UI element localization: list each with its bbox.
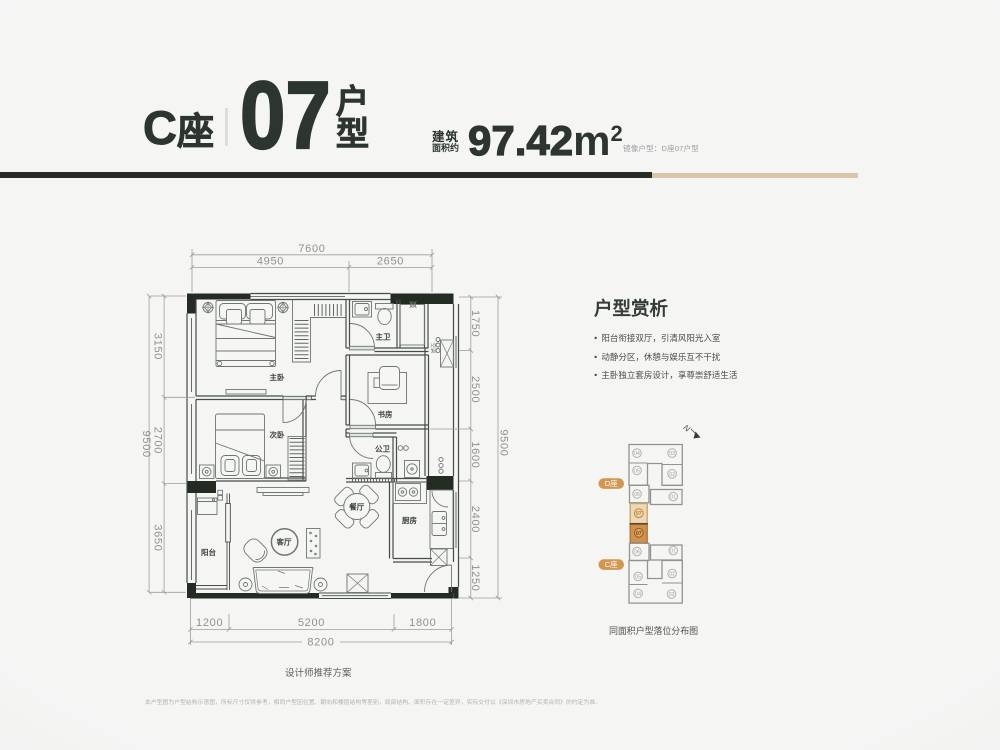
- svg-text:05: 05: [634, 468, 640, 474]
- svg-text:5200: 5200: [298, 617, 325, 629]
- svg-text:03: 03: [669, 592, 675, 598]
- svg-text:02: 02: [669, 472, 675, 478]
- svg-text:客厅: 客厅: [276, 537, 292, 547]
- svg-text:主卧: 主卧: [270, 372, 285, 382]
- svg-text:厨房: 厨房: [402, 515, 417, 525]
- svg-text:01: 01: [670, 495, 676, 501]
- svg-text:9500: 9500: [140, 431, 152, 458]
- svg-text:03: 03: [669, 451, 675, 457]
- svg-text:公卫: 公卫: [375, 445, 390, 454]
- svg-text:次卧: 次卧: [270, 430, 285, 440]
- svg-text:书房: 书房: [378, 409, 393, 419]
- svg-text:06: 06: [634, 550, 640, 556]
- svg-text:04: 04: [634, 451, 640, 457]
- svg-text:7600: 7600: [298, 243, 325, 255]
- svg-text:餐厅: 餐厅: [348, 502, 364, 512]
- svg-text:D座: D座: [605, 478, 618, 488]
- svg-text:2650: 2650: [377, 256, 404, 268]
- svg-text:N: N: [682, 423, 692, 434]
- svg-text:04: 04: [635, 591, 641, 597]
- svg-text:07: 07: [636, 511, 642, 517]
- svg-text:1200: 1200: [196, 617, 223, 629]
- svg-text:2700: 2700: [152, 427, 164, 454]
- svg-text:1600: 1600: [469, 441, 481, 468]
- svg-text:05: 05: [635, 574, 641, 580]
- svg-text:07: 07: [636, 531, 642, 537]
- svg-text:02: 02: [669, 572, 675, 578]
- svg-text:8200: 8200: [307, 637, 334, 649]
- svg-text:阳台: 阳台: [201, 547, 216, 557]
- svg-text:3650: 3650: [152, 524, 164, 551]
- svg-text:06: 06: [634, 492, 640, 498]
- svg-text:C座: C座: [605, 559, 618, 569]
- svg-text:1800: 1800: [409, 617, 436, 629]
- svg-text:2400: 2400: [469, 506, 481, 533]
- svg-text:1250: 1250: [469, 564, 481, 591]
- svg-text:主卫: 主卫: [376, 332, 391, 342]
- svg-text:4950: 4950: [257, 256, 284, 268]
- svg-text:01: 01: [670, 549, 676, 555]
- svg-text:9500: 9500: [498, 429, 510, 456]
- svg-text:3150: 3150: [152, 333, 164, 360]
- svg-text:空调: 空调: [430, 343, 437, 353]
- svg-text:1750: 1750: [469, 310, 481, 337]
- svg-text:2500: 2500: [469, 376, 481, 403]
